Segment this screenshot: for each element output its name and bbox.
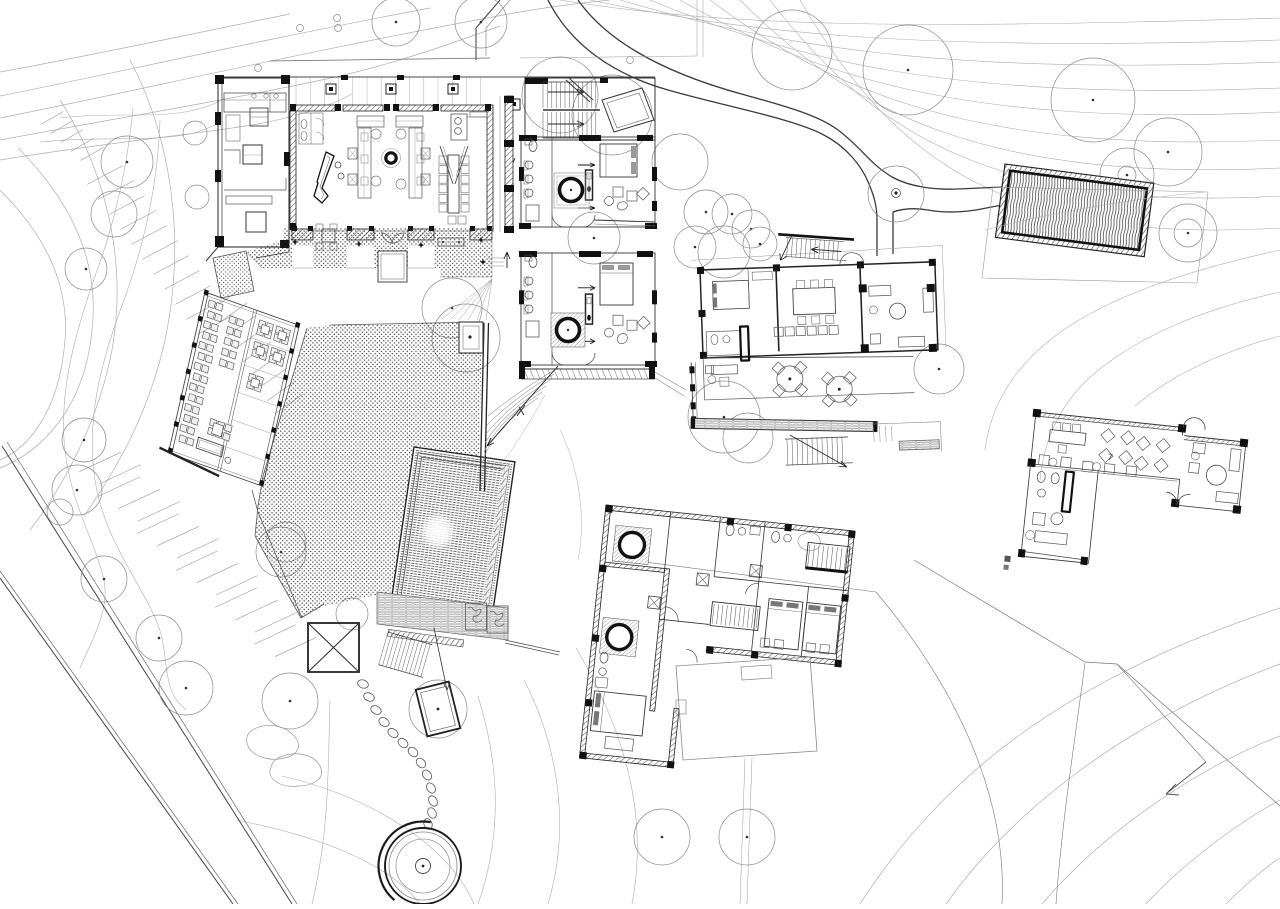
svg-text:7: 7 [1107,452,1113,462]
